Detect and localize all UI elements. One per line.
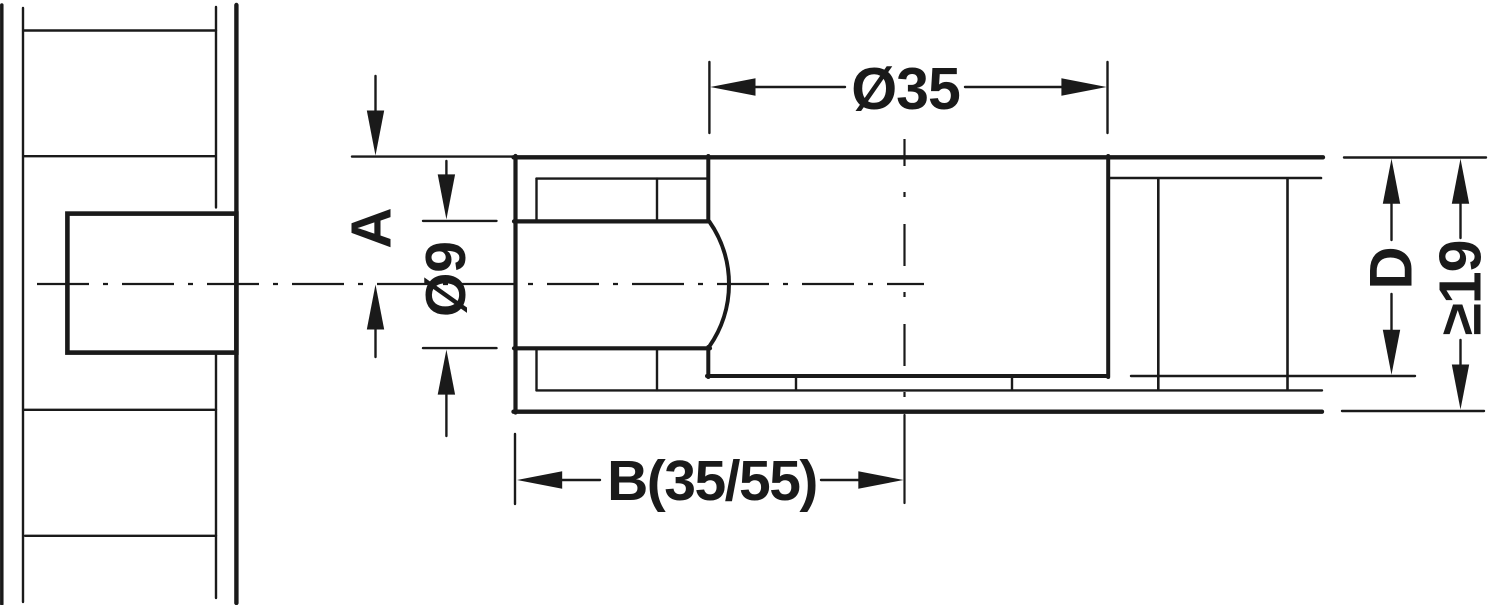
svg-text:D: D xyxy=(1358,246,1425,289)
svg-text:A: A xyxy=(340,207,404,248)
svg-text:≥19: ≥19 xyxy=(1428,240,1488,335)
svg-text:B(35/55): B(35/55) xyxy=(607,449,817,513)
svg-text:Ø35: Ø35 xyxy=(851,56,960,122)
svg-text:Ø9: Ø9 xyxy=(414,241,478,317)
